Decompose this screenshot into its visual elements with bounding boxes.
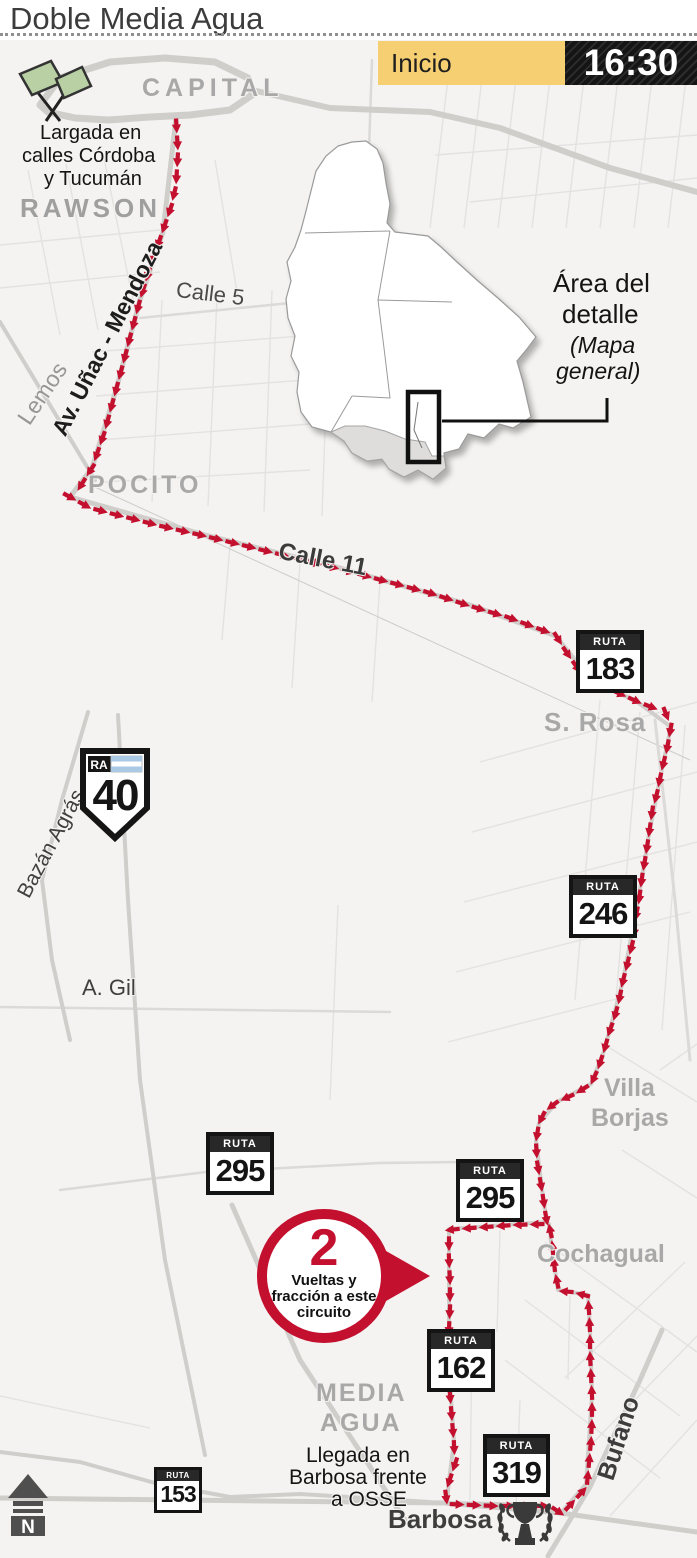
route-shield-295-west: RUTA 295 — [206, 1132, 274, 1195]
start-note-3: y Tucumán — [44, 168, 142, 191]
compass-letter: N — [21, 1517, 35, 1536]
start-time-label: Inicio — [378, 41, 565, 85]
shield-number: 183 — [580, 650, 640, 689]
finish-note-1: Llegada en — [306, 1444, 410, 1468]
area-label-santa-rosa: S. Rosa — [544, 707, 646, 738]
shield-prefix: RA — [90, 758, 108, 772]
route-shield-ra40: RA 40 — [80, 748, 150, 842]
shield-banner: RUTA — [210, 1136, 270, 1152]
area-label-rawson: RAWSON — [20, 193, 161, 224]
shield-number: 295 — [460, 1179, 520, 1218]
route-shield-162: RUTA 162 — [427, 1329, 495, 1392]
inset-caption-1: Área del — [553, 268, 650, 299]
area-label-villa-borjas-1: Villa — [604, 1074, 655, 1103]
shield-banner: RUTA — [487, 1438, 546, 1454]
shield-number: 162 — [431, 1349, 491, 1388]
shield-banner: RUTA — [460, 1163, 520, 1179]
start-flags-icon — [14, 58, 94, 124]
area-label-media-agua-1: MEDIA — [316, 1379, 407, 1408]
circuit-laps-badge: 2 Vueltas y fracción a este circuito — [257, 1209, 391, 1343]
area-label-media-agua-2: AGUA — [320, 1409, 402, 1438]
shield-banner: RUTA — [157, 1470, 199, 1481]
shield-number: 153 — [157, 1481, 199, 1510]
circuit-laps-text-3: circuito — [267, 1305, 381, 1321]
circuit-laps-count: 2 — [267, 1223, 381, 1273]
route-shield-319: RUTA 319 — [483, 1434, 550, 1497]
route-shield-246: RUTA 246 — [569, 875, 637, 938]
route-shield-183: RUTA 183 — [576, 630, 644, 693]
shield-number: 246 — [573, 895, 633, 934]
area-label-cochagual: Cochagual — [537, 1240, 665, 1269]
north-arrow-icon: N — [8, 1474, 48, 1536]
shield-number: 295 — [210, 1152, 270, 1191]
page-title: Doble Media Agua — [10, 1, 263, 37]
shield-banner: RUTA — [431, 1333, 491, 1349]
area-label-villa-borjas-2: Borjas — [591, 1104, 669, 1133]
finish-note-2: Barbosa frente — [289, 1466, 427, 1490]
shield-banner: RUTA — [580, 634, 640, 650]
start-time-value: 16:30 — [565, 41, 697, 85]
finish-note-3: a OSSE — [331, 1488, 407, 1512]
street-label-a-gil: A. Gil — [82, 975, 136, 1001]
shield-banner: RUTA — [573, 879, 633, 895]
area-label-pocito: POCITO — [88, 471, 201, 500]
area-label-capital: CAPITAL — [142, 74, 283, 103]
inset-caption-2: detalle — [562, 299, 639, 330]
shield-number: 319 — [487, 1454, 546, 1493]
title-divider — [0, 33, 697, 36]
trophy-icon — [492, 1496, 558, 1550]
inset-caption-4: general) — [556, 358, 640, 385]
shield-number: 40 — [93, 771, 138, 820]
start-note-2: calles Córdoba — [22, 145, 155, 168]
circuit-laps-text-2: fracción a este — [267, 1289, 381, 1305]
route-shield-153: RUTA 153 — [154, 1467, 202, 1513]
inset-caption-3: (Mapa — [570, 332, 635, 359]
infographic-map: Doble Media Agua Inicio 16:30 CAPITAL RA… — [0, 0, 697, 1558]
circuit-laps-text-1: Vueltas y — [267, 1273, 381, 1289]
start-note-1: Largada en — [40, 122, 141, 145]
route-shield-295-east: RUTA 295 — [456, 1159, 524, 1222]
